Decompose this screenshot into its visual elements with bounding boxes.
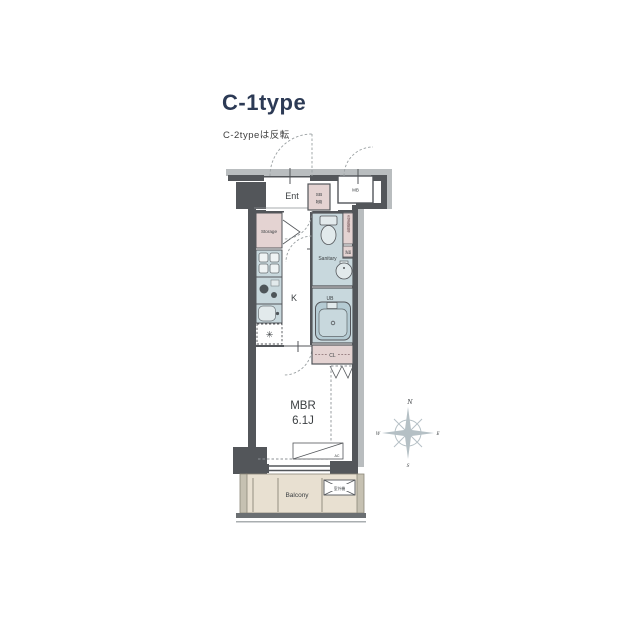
kitchen-label: K bbox=[291, 293, 297, 303]
toilet-icon bbox=[321, 226, 336, 245]
floor-plan-drawing: ✳ bbox=[0, 0, 640, 640]
outdoor-unit-label: 室外機 bbox=[334, 486, 346, 491]
washbasin-icon bbox=[336, 263, 352, 279]
left-wall bbox=[248, 207, 256, 450]
compass-rose-icon bbox=[382, 407, 434, 459]
compass-west-label: W bbox=[376, 431, 381, 436]
floorplan-page: C-1type C-2typeは反転 bbox=[0, 0, 640, 640]
compass-south-label: S bbox=[407, 463, 410, 468]
washstand-label: 洗面 bbox=[345, 250, 351, 255]
kitchen-counter: ✳ bbox=[256, 250, 282, 344]
washer-space-label: 洗濯機置場 bbox=[344, 215, 353, 243]
entrance-label: Ent bbox=[285, 191, 299, 201]
bedroom-size-label: 6.1J bbox=[292, 415, 314, 427]
balcony-label: Balcony bbox=[285, 492, 309, 499]
window bbox=[266, 464, 332, 473]
compass-east-label: E bbox=[435, 431, 439, 436]
ac-label: AC bbox=[335, 454, 340, 458]
storage-label: Storage bbox=[261, 229, 278, 234]
shoe-box-note: 靴箱 bbox=[316, 199, 323, 204]
room-closet bbox=[312, 345, 353, 378]
column-bottom-left bbox=[233, 447, 267, 474]
bedroom-label: MBR bbox=[290, 400, 316, 412]
closet-label: CL bbox=[329, 353, 336, 359]
sanitary-label: Sanitary bbox=[318, 256, 337, 262]
compass-north-label: N bbox=[406, 399, 413, 406]
hall-door-arc bbox=[284, 211, 312, 239]
unit-bath-label: UB bbox=[327, 296, 335, 302]
column-top-left bbox=[236, 182, 266, 209]
toilet-tank-icon bbox=[320, 216, 337, 225]
fridge-mark-icon: ✳ bbox=[266, 330, 274, 340]
meter-box-label: MB bbox=[352, 188, 359, 193]
shoe-box-label: SB bbox=[316, 192, 322, 198]
folding-door bbox=[330, 366, 353, 378]
